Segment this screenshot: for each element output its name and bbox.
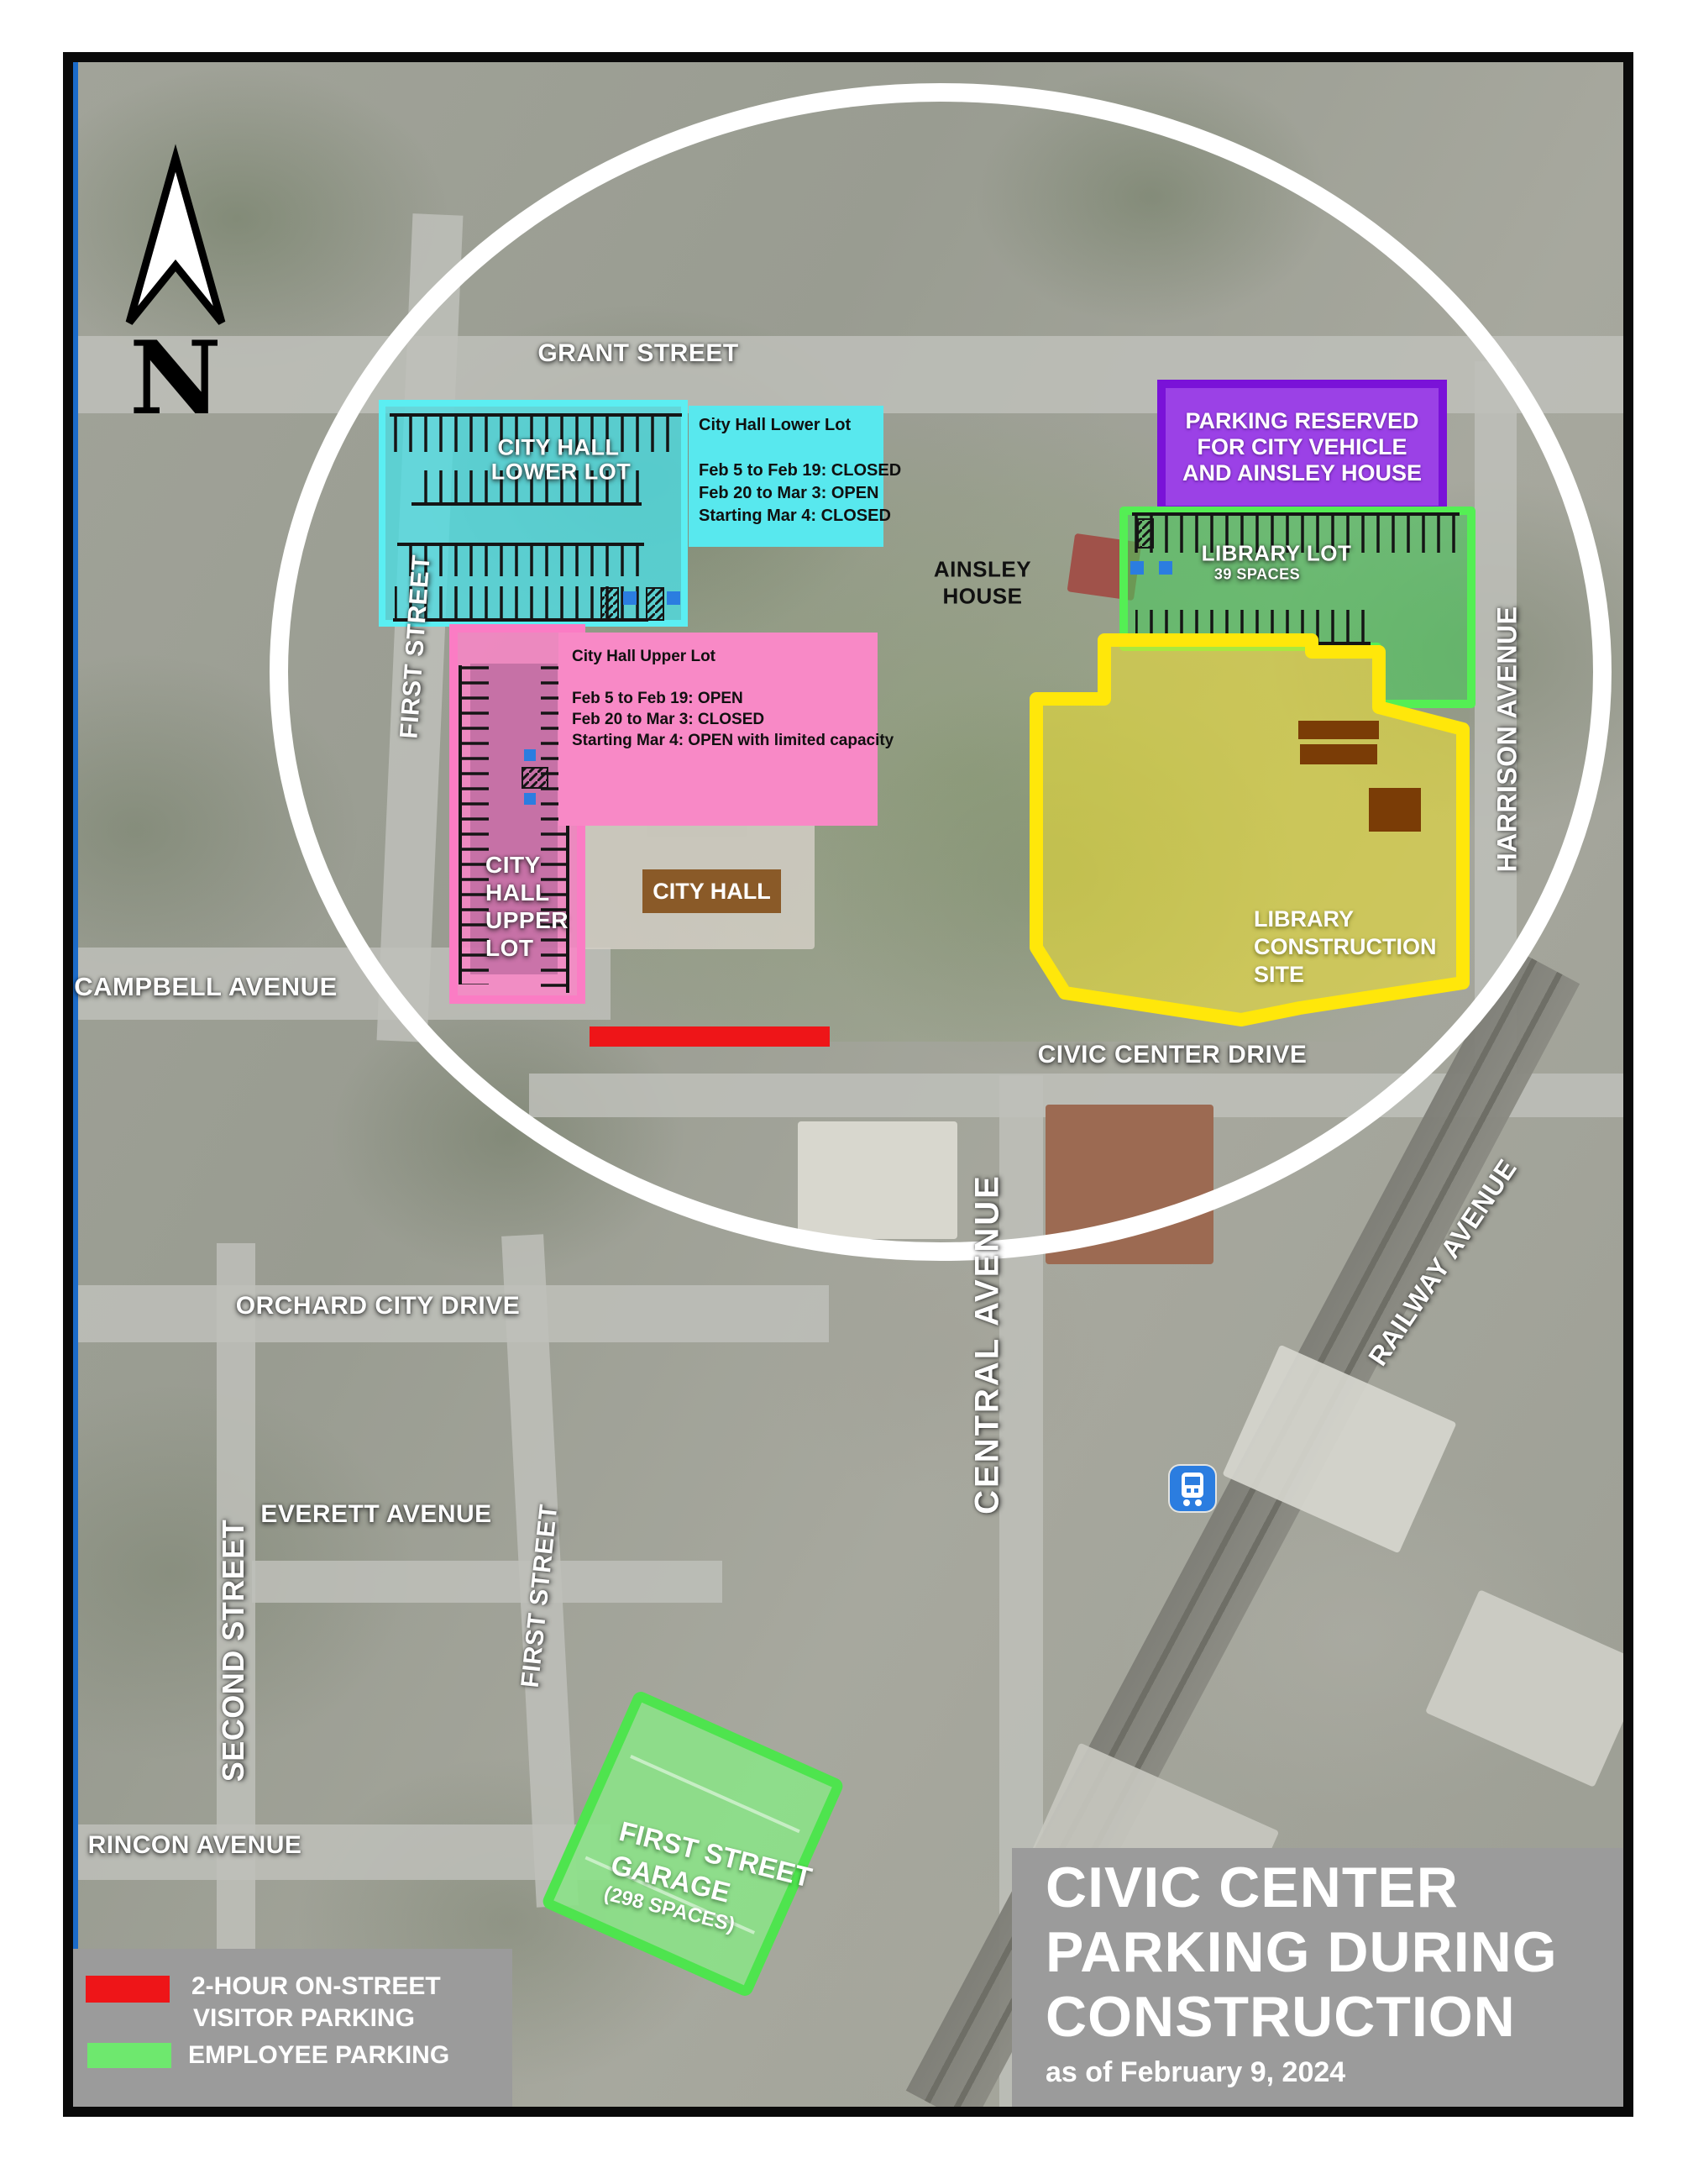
visitor-parking-bar bbox=[590, 1026, 830, 1047]
upper-lot-infobox-title: City Hall Upper Lot bbox=[572, 646, 864, 667]
upper-lot-label-line: CITY bbox=[485, 852, 541, 879]
lower-lot-label-line2: LOWER LOT bbox=[491, 459, 631, 486]
legend-visitor-line1: 2-HOUR ON-STREET bbox=[191, 1972, 441, 2001]
map-overlays: N bbox=[63, 52, 1633, 2117]
street-label-second: SECOND STREET bbox=[216, 1520, 251, 1782]
lower-lot-label-line1: CITY HALL bbox=[498, 435, 620, 461]
accessible-parking-icon bbox=[623, 591, 637, 605]
reserved-parking-label: PARKING RESERVED FOR CITY VEHICLE AND AI… bbox=[1161, 384, 1443, 510]
legend: 2-HOUR ON-STREET VISITOR PARKING EMPLOYE… bbox=[73, 1949, 512, 2107]
lower-lot-infobox-title: City Hall Lower Lot bbox=[699, 414, 873, 437]
street-label-civic-center-drive: CIVIC CENTER DRIVE bbox=[1038, 1041, 1308, 1069]
street-label-everett: EVERETT AVENUE bbox=[260, 1500, 491, 1529]
street-label-harrison: HARRISON AVENUE bbox=[1492, 606, 1523, 873]
title-box: CIVIC CENTER PARKING DURING CONSTRUCTION… bbox=[1012, 1848, 1623, 2107]
city-hall-label: CITY HALL bbox=[642, 869, 781, 913]
street-label-central: CENTRAL AVENUE bbox=[969, 1173, 1007, 1515]
title-line3: CONSTRUCTION bbox=[1046, 1984, 1516, 2050]
title-line2: PARKING DURING bbox=[1046, 1919, 1558, 1985]
title-as-of: as of February 9, 2024 bbox=[1046, 2056, 1345, 2089]
construction-site-label: LIBRARY CONSTRUCTION SITE bbox=[1254, 906, 1437, 989]
library-lot-spaces: 39 SPACES bbox=[1214, 566, 1300, 584]
legend-employee: EMPLOYEE PARKING bbox=[188, 2041, 449, 2070]
ainsley-house-label-line1: AINSLEY bbox=[934, 557, 1031, 583]
employee-parking-swatch bbox=[87, 2043, 171, 2068]
north-label: N bbox=[129, 319, 222, 438]
accessible-parking-icon bbox=[1159, 561, 1172, 575]
lower-lot-infobox: City Hall Lower Lot Feb 5 to Feb 19: CLO… bbox=[689, 406, 883, 547]
library-lot-label: LIBRARY LOT bbox=[1202, 541, 1352, 567]
accessible-parking-icon bbox=[1130, 561, 1144, 575]
parking-map-page: N GRANT STREET FIRST STREET CAMPBELL AVE… bbox=[0, 0, 1693, 2184]
visitor-parking-swatch bbox=[86, 1976, 170, 2003]
upper-lot-label-line: UPPER bbox=[485, 907, 569, 934]
ainsley-house-label-line2: HOUSE bbox=[943, 584, 1023, 610]
street-label-campbell: CAMPBELL AVENUE bbox=[74, 972, 338, 1002]
accessible-parking-icon bbox=[524, 749, 536, 761]
street-label-rincon: RINCON AVENUE bbox=[88, 1831, 302, 1860]
train-station-icon bbox=[1170, 1466, 1215, 1511]
upper-lot-infobox: City Hall Upper Lot Feb 5 to Feb 19: OPE… bbox=[558, 633, 878, 826]
title-line1: CIVIC CENTER bbox=[1046, 1855, 1459, 1920]
accessible-parking-icon bbox=[667, 591, 680, 605]
street-label-grant: GRANT STREET bbox=[537, 339, 738, 368]
upper-lot-label-line: LOT bbox=[485, 935, 534, 962]
upper-lot-label-line: HALL bbox=[485, 879, 550, 906]
accessible-parking-icon bbox=[524, 793, 536, 805]
north-arrow-icon bbox=[129, 158, 222, 323]
aerial-map: N GRANT STREET FIRST STREET CAMPBELL AVE… bbox=[63, 52, 1633, 2117]
street-label-orchard-city: ORCHARD CITY DRIVE bbox=[236, 1292, 520, 1320]
legend-visitor-line2: VISITOR PARKING bbox=[193, 2004, 415, 2033]
